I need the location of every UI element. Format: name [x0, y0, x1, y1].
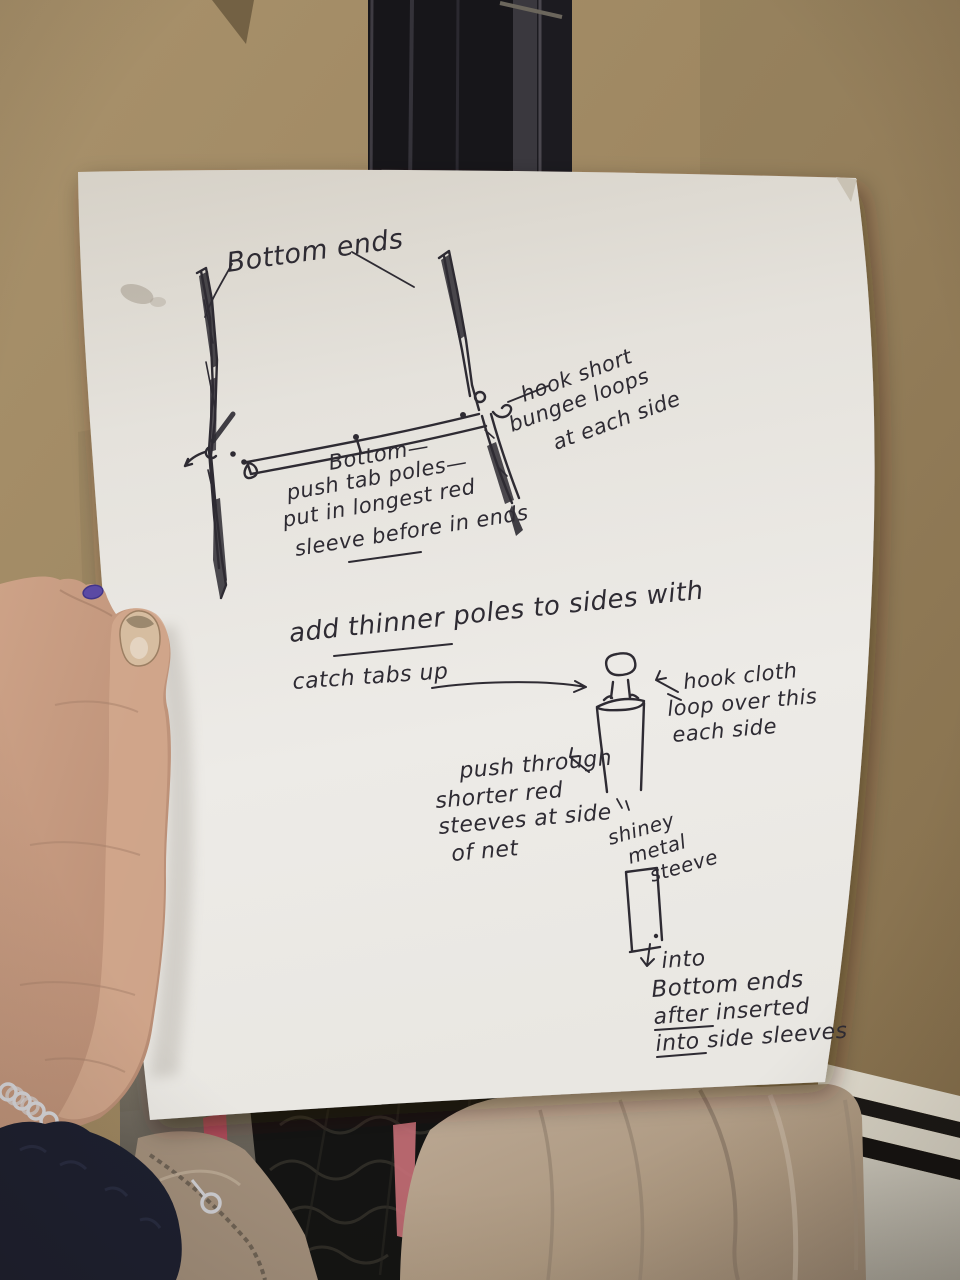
photo-scene: Bottom ends hook short bungee loops at e… — [0, 0, 960, 1280]
vignette — [0, 0, 960, 1280]
scene-canvas: Bottom ends hook short bungee loops at e… — [0, 0, 960, 1280]
